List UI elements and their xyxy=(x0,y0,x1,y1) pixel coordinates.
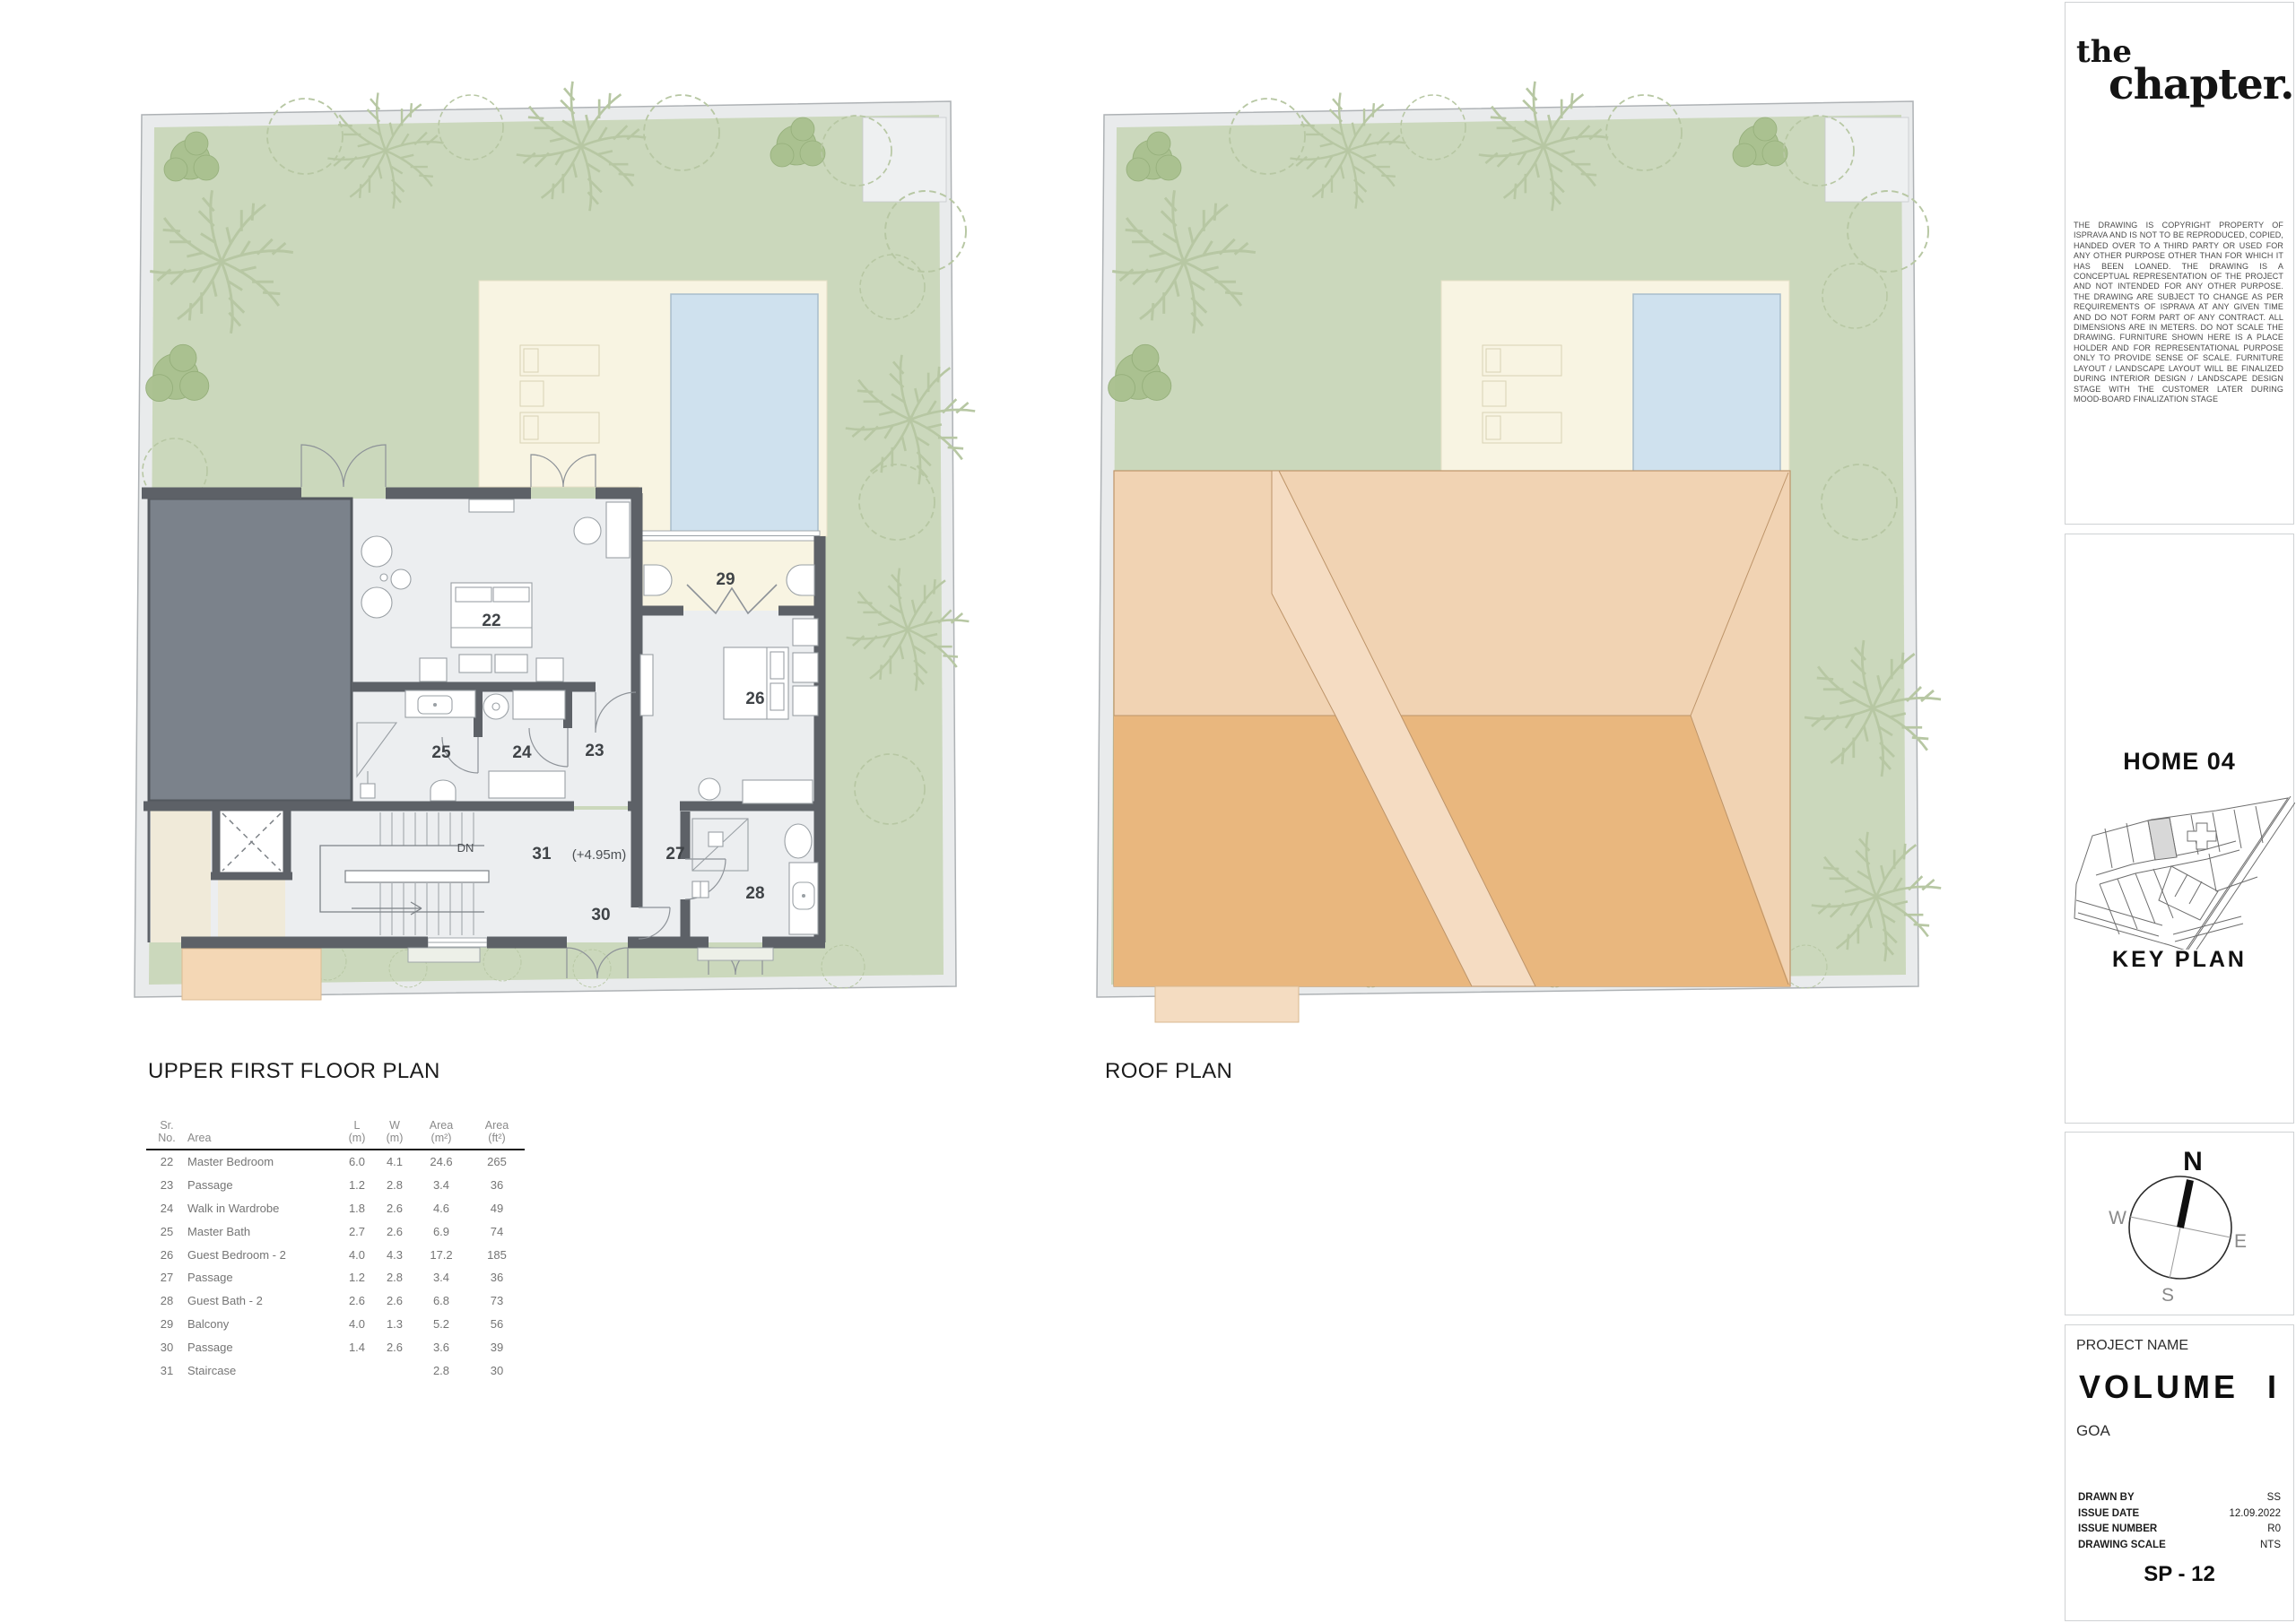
lift-shaft xyxy=(219,810,283,878)
roof-plan-title: ROOF PLAN xyxy=(1105,1059,1232,1084)
field-value: R0 xyxy=(2267,1522,2281,1538)
lower-terrace xyxy=(182,949,321,1000)
room-label-27: 27 xyxy=(665,845,684,864)
project-location: GOA xyxy=(2076,1422,2110,1440)
upper-floor-plan: 22 25 24 23 29 26 27 28 30 31 DN (+4.95m… xyxy=(135,82,975,1000)
swimming-pool xyxy=(671,294,818,532)
compass-s: S xyxy=(2161,1285,2174,1306)
room-label-31: 31 xyxy=(532,845,552,864)
titleblock-logo-box: the chapter. THE DRAWING IS COPYRIGHT PR… xyxy=(2065,2,2294,525)
lower-terrace xyxy=(1155,986,1299,1022)
north-compass: N W E S xyxy=(2098,1141,2263,1306)
site-corner-pad xyxy=(863,117,946,202)
field-issue-date: ISSUE DATE 12.09.2022 xyxy=(2078,1506,2281,1523)
table-row: 24Walk in Wardrobe1.82.64.649 xyxy=(146,1197,525,1220)
room-label-28: 28 xyxy=(745,884,764,903)
level-label: (+4.95m) xyxy=(572,847,626,863)
room-label-25: 25 xyxy=(431,743,451,762)
col-area-ft2: Area(ft²) xyxy=(469,1119,525,1150)
field-value: SS xyxy=(2267,1490,2281,1506)
table-row: 28Guest Bath - 22.62.66.873 xyxy=(146,1289,525,1313)
floor-service-strip xyxy=(151,810,211,942)
key-plan-caption: KEY PLAN xyxy=(2066,947,2293,973)
col-area-m2: Area(m²) xyxy=(413,1119,469,1150)
table-header-row: Sr.No. Area L(m) W(m) Area(m²) Area(ft²) xyxy=(146,1119,525,1150)
table-row: 31Staircase2.830 xyxy=(146,1358,525,1382)
table-row: 23Passage1.22.83.436 xyxy=(146,1174,525,1197)
col-length: L(m) xyxy=(338,1119,376,1150)
field-label: DRAWING SCALE xyxy=(2078,1538,2166,1554)
table-row: 26Guest Bedroom - 24.04.317.2185 xyxy=(146,1243,525,1266)
room-label-29: 29 xyxy=(716,570,735,589)
compass-w: W xyxy=(2109,1208,2126,1228)
room-label-30: 30 xyxy=(591,906,610,924)
site-corner-pad xyxy=(1825,117,1909,202)
titleblock-project-box: PROJECT NAME VOLUME I GOA DRAWN BY SS IS… xyxy=(2065,1324,2294,1621)
project-name: VOLUME I xyxy=(2066,1368,2293,1406)
field-label: ISSUE DATE xyxy=(2078,1506,2139,1523)
table-row: 27Passage1.22.83.436 xyxy=(146,1266,525,1289)
home-number: HOME 04 xyxy=(2066,748,2293,776)
area-schedule-table: Sr.No. Area L(m) W(m) Area(m²) Area(ft²)… xyxy=(146,1119,525,1382)
titleblock-keyplan-box: HOME 04 KEY PLAN xyxy=(2065,534,2294,1124)
field-value: NTS xyxy=(2260,1538,2281,1554)
col-width: W(m) xyxy=(376,1119,413,1150)
room-label-23: 23 xyxy=(585,742,604,760)
field-label: DRAWN BY xyxy=(2078,1490,2135,1506)
copyright-note: THE DRAWING IS COPYRIGHT PROPERTY OF ISP… xyxy=(2074,221,2283,404)
company-logo: the chapter. xyxy=(2066,39,2293,105)
stair-dn-label: DN xyxy=(457,841,474,855)
col-area-name: Area xyxy=(187,1119,338,1150)
table-row: 22Master Bedroom6.04.124.6265 xyxy=(146,1150,525,1174)
roof xyxy=(1114,471,1790,986)
table-row: 25Master Bath2.72.66.974 xyxy=(146,1219,525,1243)
titleblock-compass-box: N W E S xyxy=(2065,1132,2294,1315)
col-sr-no: Sr.No. xyxy=(146,1119,187,1150)
sheet-number: SP - 12 xyxy=(2066,1562,2293,1587)
table-row: 29Balcony4.01.35.256 xyxy=(146,1313,525,1336)
drawing-info-fields: DRAWN BY SS ISSUE DATE 12.09.2022 ISSUE … xyxy=(2078,1490,2281,1553)
floor-below-lift xyxy=(218,880,285,941)
room-label-24: 24 xyxy=(512,743,532,762)
compass-n: N xyxy=(2183,1147,2203,1176)
drawing-sheet: 22 25 24 23 29 26 27 28 30 31 DN (+4.95m… xyxy=(0,0,2296,1623)
room-label-26: 26 xyxy=(745,690,764,708)
table-row: 30Passage1.42.63.639 xyxy=(146,1335,525,1358)
upper-floor-plan-title: UPPER FIRST FLOOR PLAN xyxy=(148,1059,440,1084)
double-height-block xyxy=(149,499,352,801)
compass-e: E xyxy=(2234,1231,2247,1252)
room-label-22: 22 xyxy=(482,612,500,630)
field-value: 12.09.2022 xyxy=(2229,1506,2281,1523)
key-plan-map xyxy=(2066,784,2295,950)
field-label: ISSUE NUMBER xyxy=(2078,1522,2157,1538)
field-issue-number: ISSUE NUMBER R0 xyxy=(2078,1522,2281,1538)
roof-plan xyxy=(1097,82,1941,1022)
logo-line-chapter: chapter. xyxy=(2109,65,2293,105)
field-drawn-by: DRAWN BY SS xyxy=(2078,1490,2281,1506)
field-drawing-scale: DRAWING SCALE NTS xyxy=(2078,1538,2281,1554)
project-name-label: PROJECT NAME xyxy=(2076,1338,2188,1354)
